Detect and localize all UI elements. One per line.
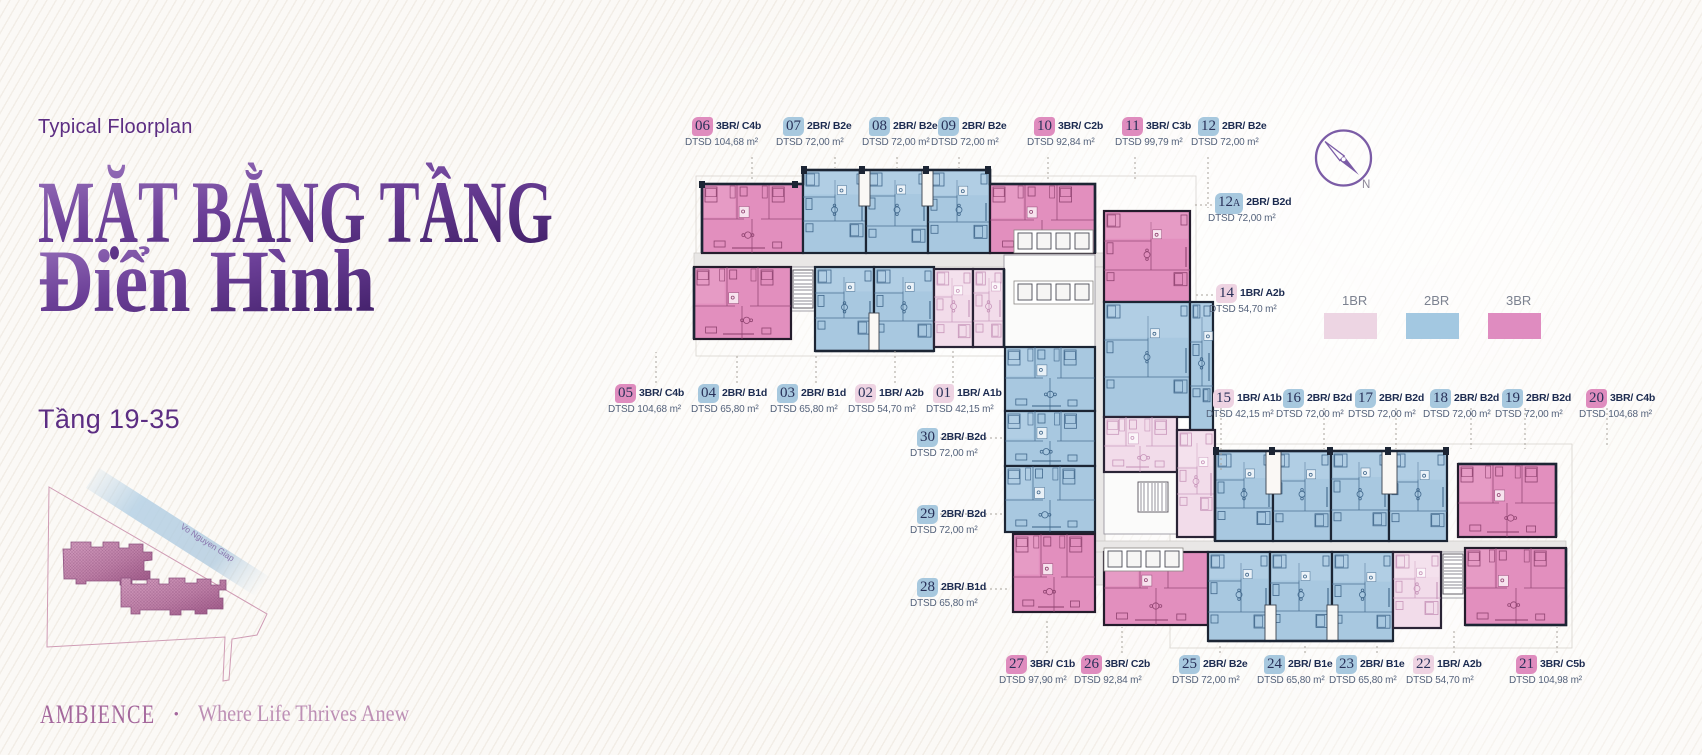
svg-text:N: N	[1362, 179, 1370, 191]
